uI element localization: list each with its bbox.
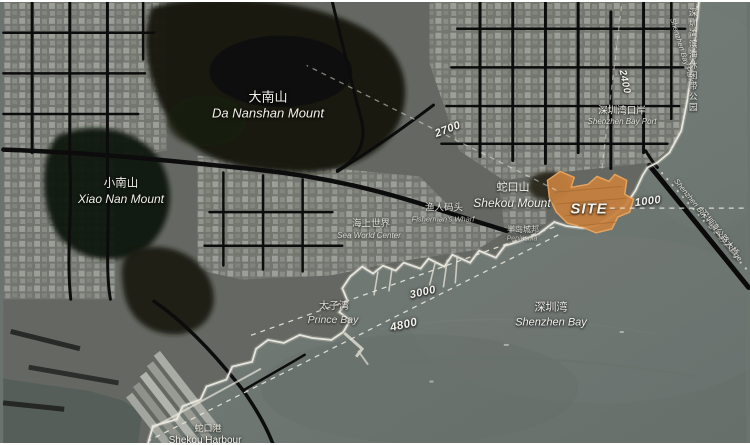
- label-peninsula-en: Peninsula: [507, 236, 538, 243]
- label-shenzhen-bay-zh: 深圳湾: [535, 303, 568, 314]
- label-site: SITE: [570, 202, 607, 217]
- distance-1000: 1000: [634, 195, 662, 209]
- label-fisherman-wharf-en: Fisherman's Wharf: [412, 215, 475, 223]
- label-shekou-mount-zh: 蛇口山: [497, 183, 530, 194]
- label-prince-bay-en: Prince Bay: [308, 315, 359, 326]
- satellite-site-map: 大南山 Da Nanshan Mount 小南山 Xiao Nan Mount …: [0, 2, 750, 443]
- label-shekou-mount-en: Shekou Mount: [473, 197, 550, 209]
- label-da-nanshan-zh: 大南山: [248, 91, 287, 104]
- label-peninsula-zh: 半岛城邦: [507, 226, 539, 234]
- label-shekou-harbour-en: Shekou Harbour: [169, 436, 242, 443]
- label-shenzhen-bay-en: Shenzhen Bay: [515, 318, 587, 329]
- distance-3000: 3000: [409, 285, 437, 302]
- label-fisherman-wharf-zh: 渔人码头: [425, 203, 463, 213]
- label-xiao-nan-en: Xiao Nan Mount: [78, 193, 164, 205]
- label-sea-world-en: Sea World Center: [337, 232, 401, 240]
- label-xiao-nan-zh: 小南山: [104, 178, 139, 190]
- label-bay-bridge-zh: 深圳湾公路大桥: [698, 209, 739, 258]
- label-sea-world-zh: 海上世界: [352, 219, 390, 229]
- label-shenzhen-bay-port-zh: 深圳湾口岸: [598, 106, 646, 116]
- distance-4800: 4800: [389, 317, 418, 334]
- label-shenzhen-bay-port-en: Shenzhen Bay Port: [588, 118, 657, 126]
- label-da-nanshan-en: Da Nanshan Mount: [212, 107, 324, 120]
- map-labels: 大南山 Da Nanshan Mount 小南山 Xiao Nan Mount …: [0, 2, 750, 443]
- label-prince-bay-zh: 太子湾: [319, 302, 349, 312]
- distance-2400: 2400: [617, 69, 632, 95]
- distance-2700: 2700: [434, 120, 463, 140]
- label-shekou-harbour-zh: 蛇口港: [194, 425, 221, 434]
